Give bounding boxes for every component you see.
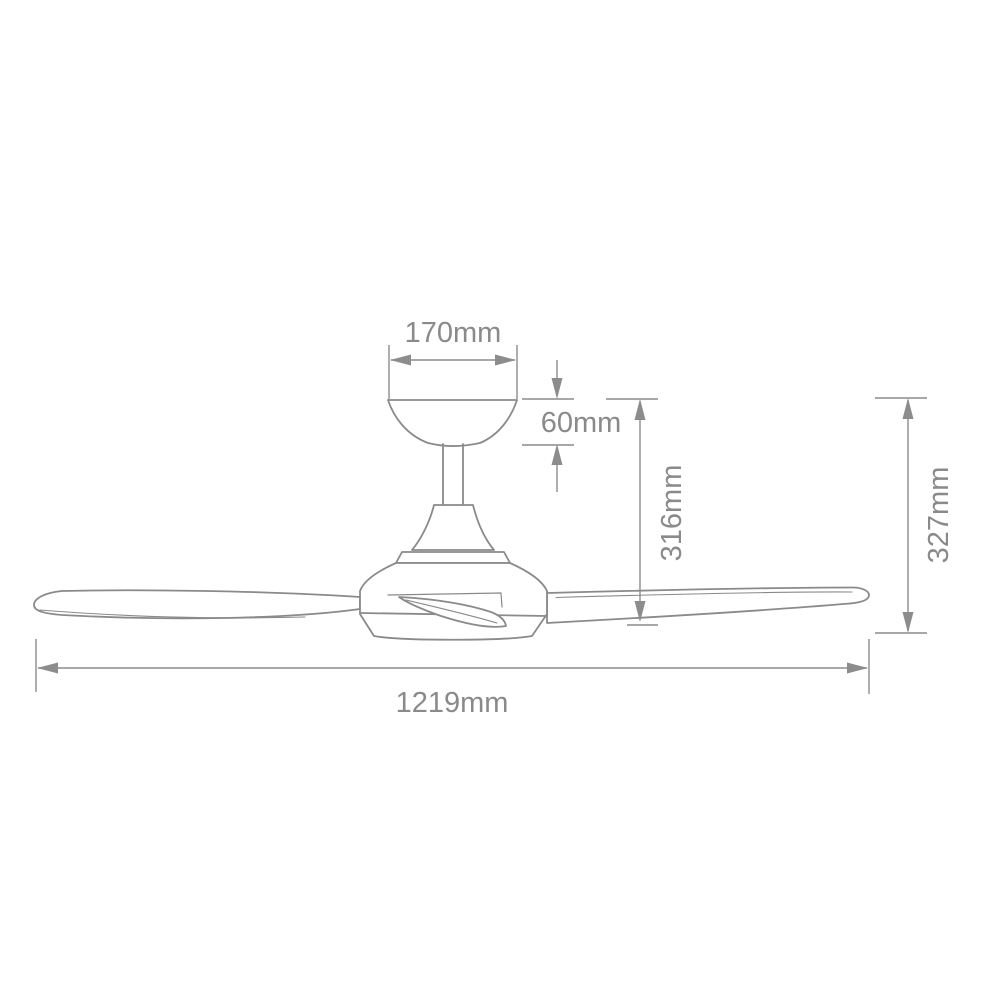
arrow-left-icon (37, 663, 58, 674)
mounting-cone (412, 505, 494, 550)
dim-label-canopy-width: 170mm (405, 317, 502, 349)
arrow-up-icon (635, 399, 646, 420)
dim-label-blade-span: 1219mm (396, 687, 509, 719)
arrow-up-icon (903, 398, 914, 419)
dim-blade-span: 1219mm (36, 639, 869, 719)
downrod (443, 444, 463, 505)
motor-housing (360, 563, 547, 640)
dim-canopy-width: 170mm (389, 317, 517, 399)
diagram-canvas: 170mm 60mm 316mm (0, 0, 1000, 1000)
arrow-down-icon (552, 378, 563, 399)
dim-canopy-height: 60mm (522, 360, 621, 492)
left-blade (34, 590, 360, 618)
arrow-down-icon (903, 612, 914, 633)
dimension-annotations: 170mm 60mm 316mm (36, 317, 955, 719)
canopy (388, 400, 517, 446)
right-blade (547, 588, 869, 624)
dim-overall-height: 327mm (875, 398, 955, 633)
arrow-left-icon (390, 355, 411, 366)
ceiling-fan-drawing (34, 400, 869, 640)
collar-ring (396, 552, 510, 563)
fan-dimension-diagram: 170mm 60mm 316mm (0, 0, 1000, 1000)
dim-label-top-to-blade-height: 316mm (656, 465, 688, 562)
arrow-right-icon (495, 355, 516, 366)
dim-label-overall-height: 327mm (923, 467, 955, 564)
arrow-up-icon (552, 444, 563, 465)
dim-label-canopy-height: 60mm (541, 407, 622, 439)
arrow-right-icon (847, 663, 868, 674)
